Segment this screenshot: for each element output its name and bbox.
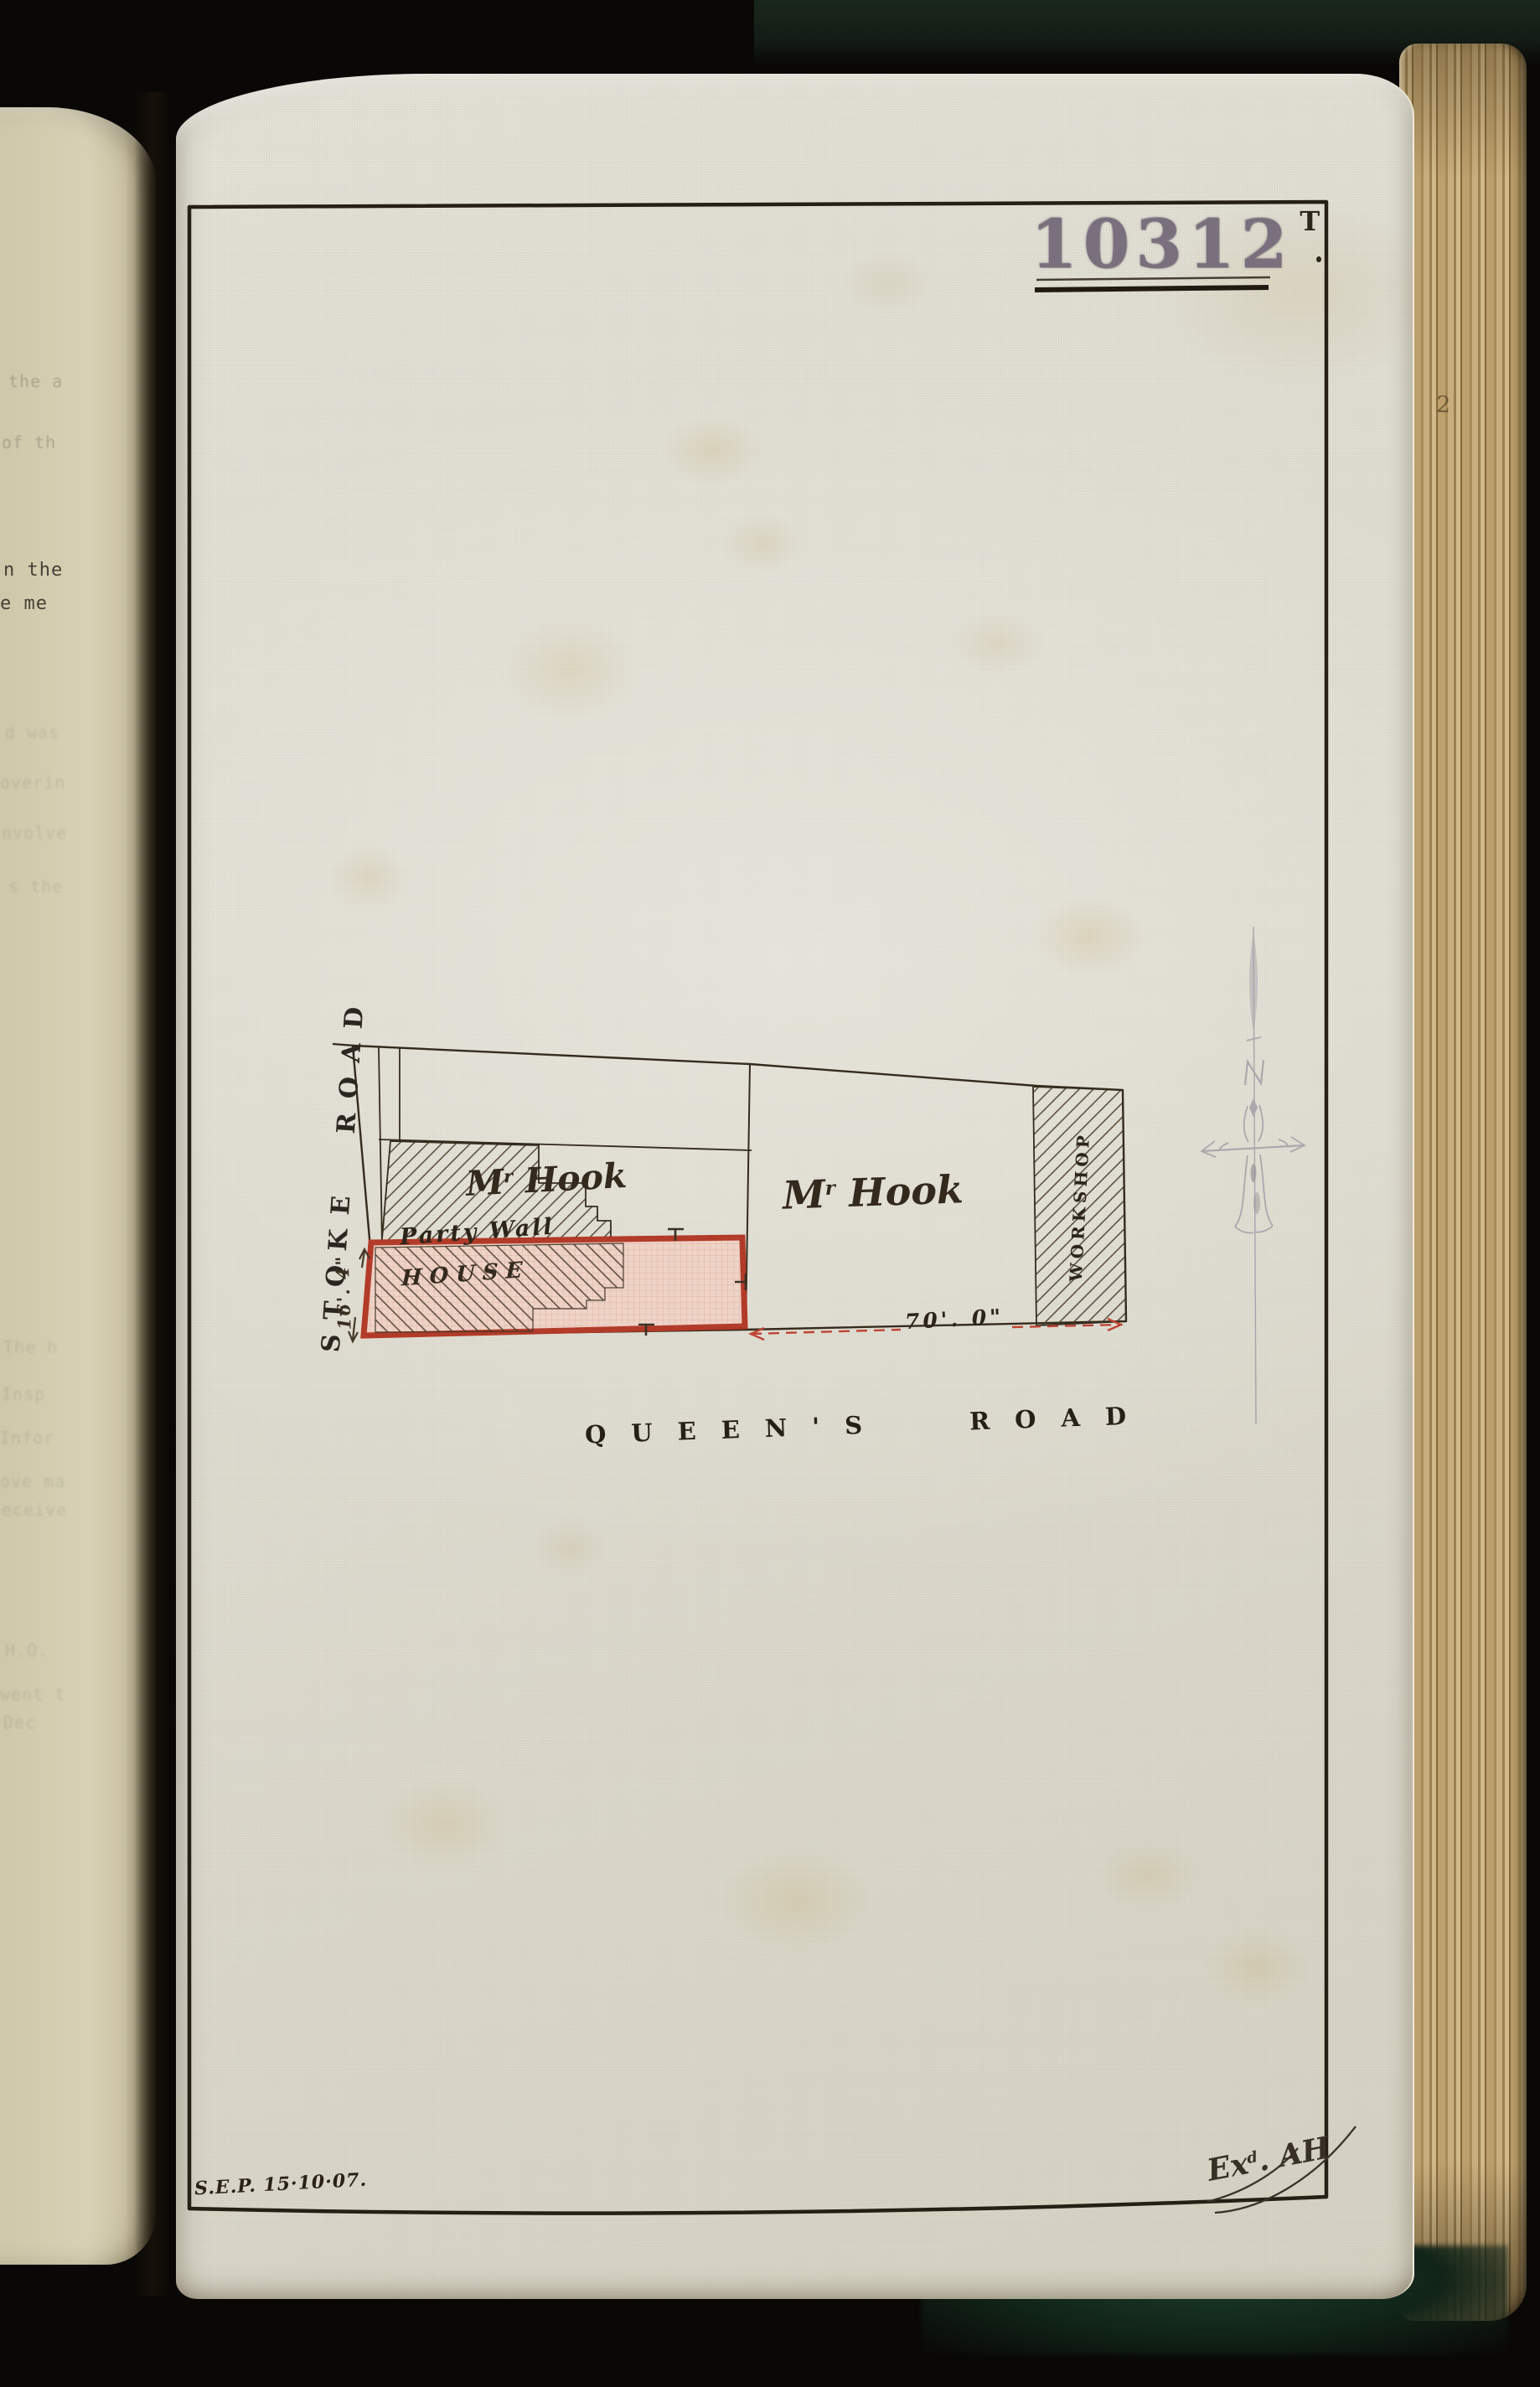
owner-label-left-parcel: Mr Hook <box>465 1155 628 1204</box>
left-page-text-fragment: s the <box>8 876 63 896</box>
left-page-text-fragment: The h <box>3 1337 58 1357</box>
page-edge-number: 2 <box>1435 392 1451 419</box>
page-edge-stack <box>1399 44 1527 2321</box>
left-page <box>0 107 156 2265</box>
owner-rest: Hook <box>512 1155 628 1201</box>
left-page-text-fragment: d was <box>5 722 59 742</box>
owner-sup: r <box>824 1177 835 1200</box>
dimension-stoke-frontage: 16'. 4" <box>331 1244 355 1341</box>
dimension-queens-frontage: 70'. 0" <box>904 1305 1005 1334</box>
left-page-text-fragment: Insp <box>2 1384 45 1404</box>
left-page-text-fragment: Infor <box>0 1428 54 1448</box>
owner-rest: Hook <box>835 1166 964 1216</box>
left-page-text-fragment: ove ma <box>0 1471 65 1491</box>
left-page-text-fragment: went t <box>0 1684 65 1704</box>
register-number-stamp: 10312T <box>1031 204 1320 283</box>
owner-label-right-parcel: Mr Hook <box>782 1166 964 1217</box>
scanned-book-page: the a of th n the e me d was overin nvol… <box>0 0 1540 2387</box>
owner-prefix: M <box>465 1162 505 1204</box>
left-page-text-fragment: eceive <box>2 1500 67 1520</box>
stamp-superscript-t: T <box>1300 205 1320 237</box>
left-page-text-fragment: overin <box>0 772 65 793</box>
left-page-text-fragment: of th <box>2 432 56 452</box>
left-page-text-fragment: nvolve <box>2 823 67 843</box>
left-page-text-fragment: H.O. <box>5 1640 49 1661</box>
owner-prefix: M <box>782 1171 826 1218</box>
left-page-text-fragment: e me <box>0 593 48 614</box>
register-number: 10312 <box>1031 204 1293 283</box>
left-page-text-fragment: Dec <box>3 1713 36 1733</box>
left-page-text-fragment: the a <box>8 371 63 391</box>
left-page-text-fragment: n the <box>3 560 63 581</box>
